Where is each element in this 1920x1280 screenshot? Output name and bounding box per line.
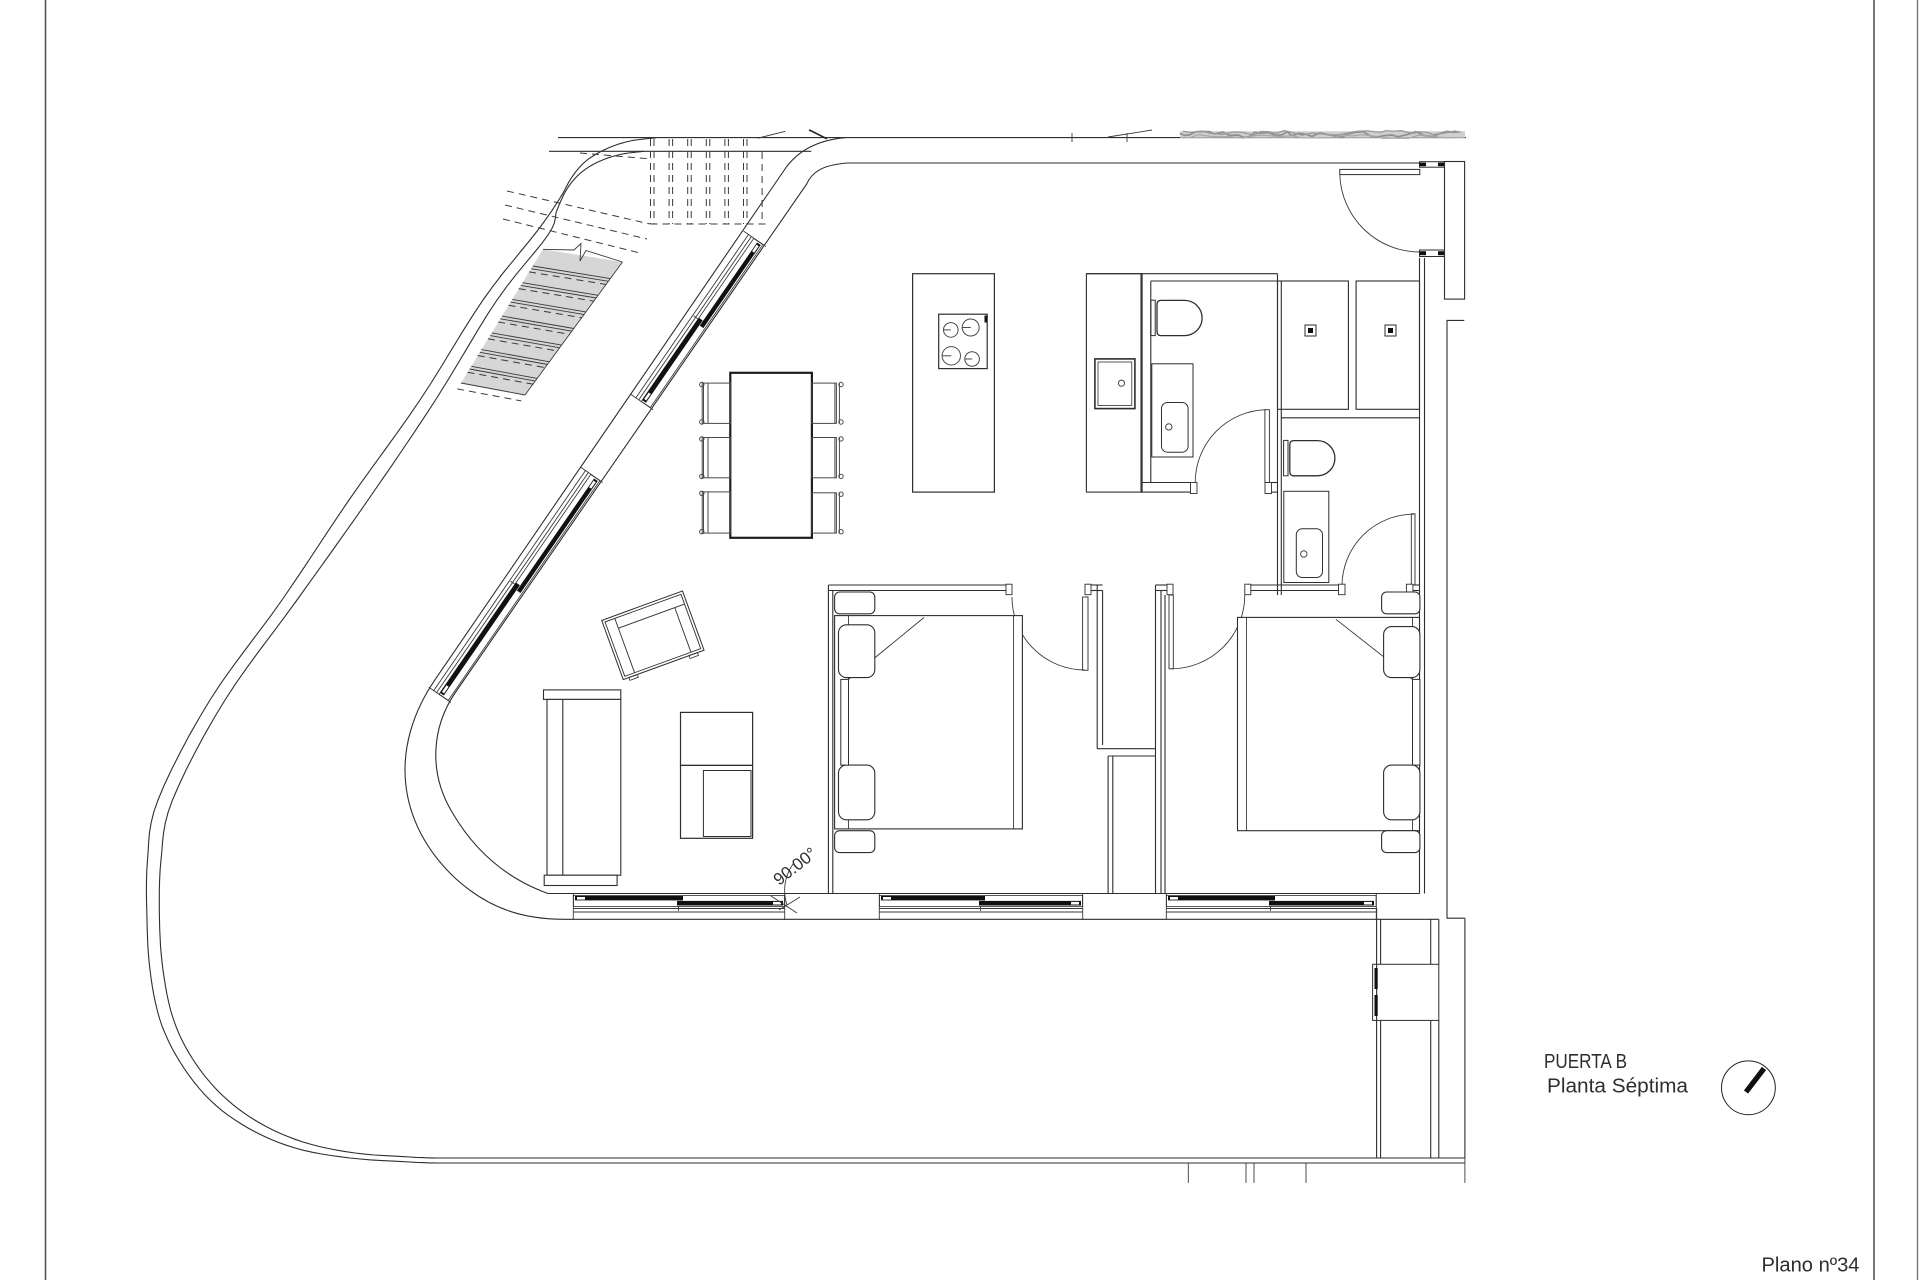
svg-text:PUERTA B: PUERTA B (1544, 1051, 1627, 1073)
svg-text:Plano nº34: Plano nº34 (1762, 1255, 1860, 1277)
svg-text:90.00°: 90.00° (770, 844, 821, 889)
svg-text:Planta Séptima: Planta Séptima (1547, 1075, 1689, 1098)
